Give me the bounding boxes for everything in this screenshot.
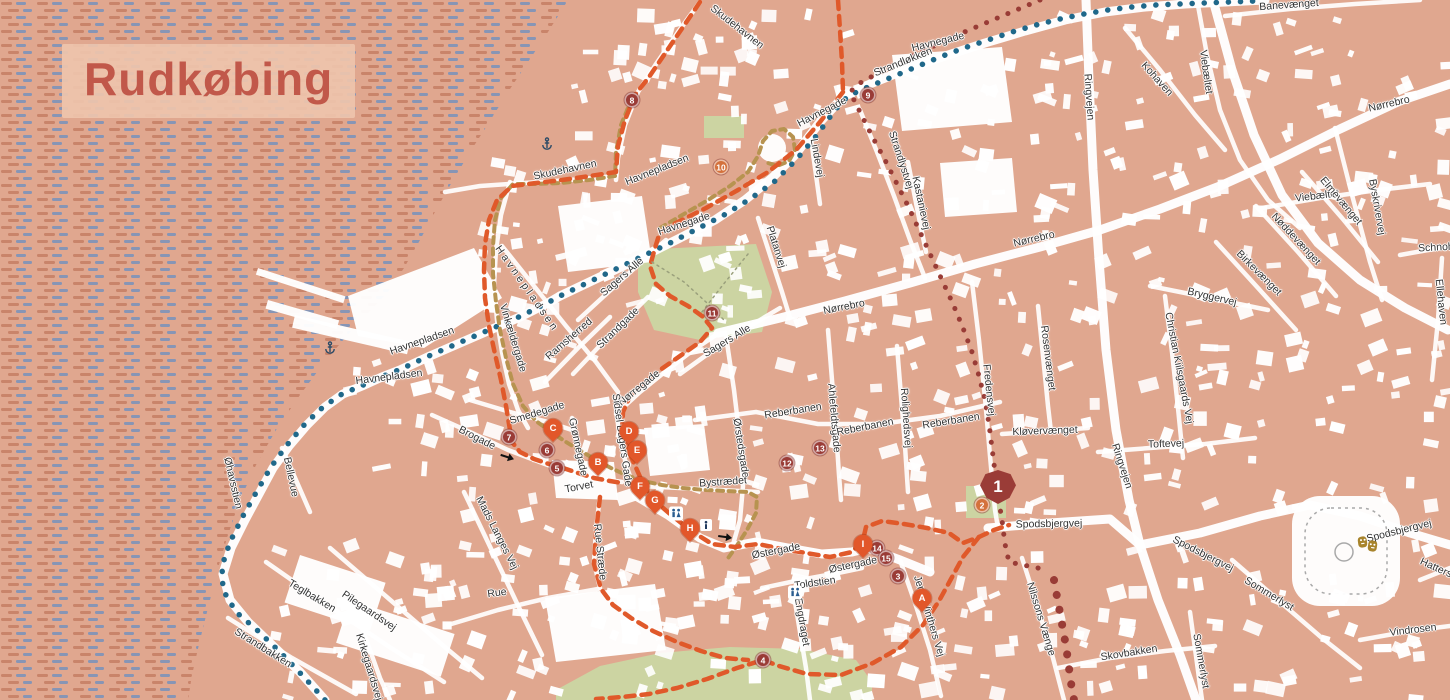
map-title: Rudkøbing	[62, 44, 355, 118]
map-canvas[interactable]: SkudehavnenSkudehavnenHavnepladsenHavneg…	[0, 0, 1450, 700]
marker-8[interactable]: 8	[625, 93, 640, 108]
marker-9[interactable]: 9	[861, 88, 876, 103]
anchor-icon	[324, 341, 336, 359]
marker-12[interactable]: 12	[780, 456, 795, 471]
marker-15[interactable]: 15	[879, 551, 894, 566]
marker-7[interactable]: 7	[502, 430, 517, 445]
marker-E[interactable]: E	[624, 437, 651, 464]
theater-icon	[1357, 536, 1379, 559]
marker-I[interactable]: I	[850, 531, 877, 558]
marker-letter: H	[681, 519, 700, 538]
marker-2[interactable]: 2	[975, 498, 990, 513]
marker-letter: B	[589, 453, 608, 472]
marker-letter: A	[913, 589, 932, 608]
marker-6[interactable]: 6	[540, 443, 555, 458]
marker-11[interactable]: 11	[705, 306, 720, 321]
marker-letter: I	[854, 535, 873, 554]
marker-4[interactable]: 4	[756, 653, 771, 668]
info-icon	[700, 518, 712, 536]
map-title-text: Rudkøbing	[84, 53, 333, 105]
marker-B[interactable]: B	[585, 449, 612, 476]
marker-letter: E	[628, 441, 647, 460]
marker-letter: D	[620, 422, 639, 441]
marker-10[interactable]: 10	[714, 160, 729, 175]
marker-letter: G	[646, 491, 665, 510]
marker-H[interactable]: H	[677, 515, 704, 542]
anchor-icon	[541, 137, 553, 155]
marker-5[interactable]: 5	[550, 461, 565, 476]
marker-letter: C	[544, 419, 563, 438]
marker-13[interactable]: 13	[813, 441, 828, 456]
arrow-icon	[716, 528, 734, 548]
restroom-icon	[788, 586, 802, 605]
marker-C[interactable]: C	[540, 415, 567, 442]
marker-G[interactable]: G	[642, 487, 669, 514]
marker-A[interactable]: A	[909, 585, 936, 612]
marker-3[interactable]: 3	[891, 569, 906, 584]
